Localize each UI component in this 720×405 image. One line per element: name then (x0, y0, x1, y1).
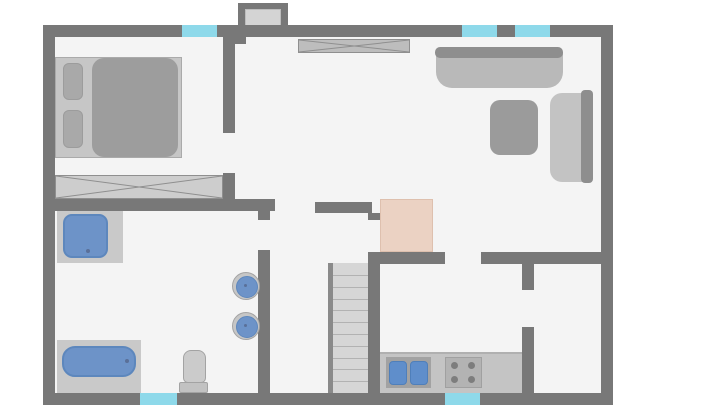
kitchen-window (445, 393, 480, 405)
stair-tread (333, 287, 368, 299)
stair-tread (333, 275, 368, 287)
storage-room-wall-lower (522, 327, 534, 393)
stair-tread (333, 369, 368, 381)
built-in-closet (298, 39, 410, 53)
sink-drain-icon (244, 324, 247, 327)
bathtub-drain-icon (125, 359, 129, 363)
stair-tread (333, 334, 368, 346)
storage-room-wall-upper (522, 264, 534, 290)
stair-tread (333, 310, 368, 322)
entrance-door (245, 9, 281, 26)
stair-tread (333, 322, 368, 334)
round-sink-2 (232, 312, 260, 340)
sofa-backrest (435, 47, 563, 58)
stair-tread (333, 299, 368, 311)
wardrobe-x-icon (56, 176, 222, 198)
loveseat-backrest (581, 90, 593, 183)
wardrobe (55, 175, 223, 199)
pillow (63, 63, 83, 100)
kitchen-top-wall-right (481, 252, 601, 264)
burner-icon (451, 376, 458, 383)
bathroom-door-jamb (258, 211, 270, 220)
stove (445, 357, 482, 388)
fireplace-hearth (380, 199, 433, 252)
bedroom-wall-upper (223, 37, 235, 133)
toilet-tank (179, 382, 208, 393)
wall-bottom (43, 393, 613, 405)
bedroom-window (182, 25, 217, 37)
burner-icon (451, 362, 458, 369)
sink-basin (236, 276, 258, 298)
round-sink-1 (232, 272, 260, 300)
hallway-stair-wall (315, 202, 372, 213)
staircase-treads (333, 263, 368, 393)
wall-right (601, 25, 613, 405)
kitchen-sink (386, 357, 431, 388)
stair-tread (333, 346, 368, 358)
toilet-bowl (183, 350, 206, 383)
sink-basin-right (410, 361, 428, 385)
sink-drain-icon (244, 284, 247, 287)
floor-plan (0, 0, 720, 405)
living-room-window-2 (515, 25, 550, 37)
stair-tread (333, 381, 368, 393)
mattress (92, 58, 178, 157)
bathroom-window (140, 393, 177, 405)
pillow (63, 110, 83, 148)
ottoman-table (490, 100, 538, 155)
living-room-window-1 (462, 25, 497, 37)
wall-left (43, 25, 55, 405)
burner-icon (468, 376, 475, 383)
sink-basin (236, 316, 258, 338)
closet-x-icon (299, 40, 409, 52)
stairwell-right-wall (368, 252, 380, 393)
bathroom-right-wall (258, 250, 270, 393)
entrance-jamb (235, 37, 246, 44)
burner-icon (468, 362, 475, 369)
shower-drain-icon (86, 249, 90, 253)
bedroom-bathroom-wall (55, 199, 275, 211)
sink-basin-left (389, 361, 407, 385)
stair-door-jamb (368, 213, 380, 220)
kitchen-top-wall-left (370, 252, 445, 264)
stair-tread (333, 358, 368, 370)
